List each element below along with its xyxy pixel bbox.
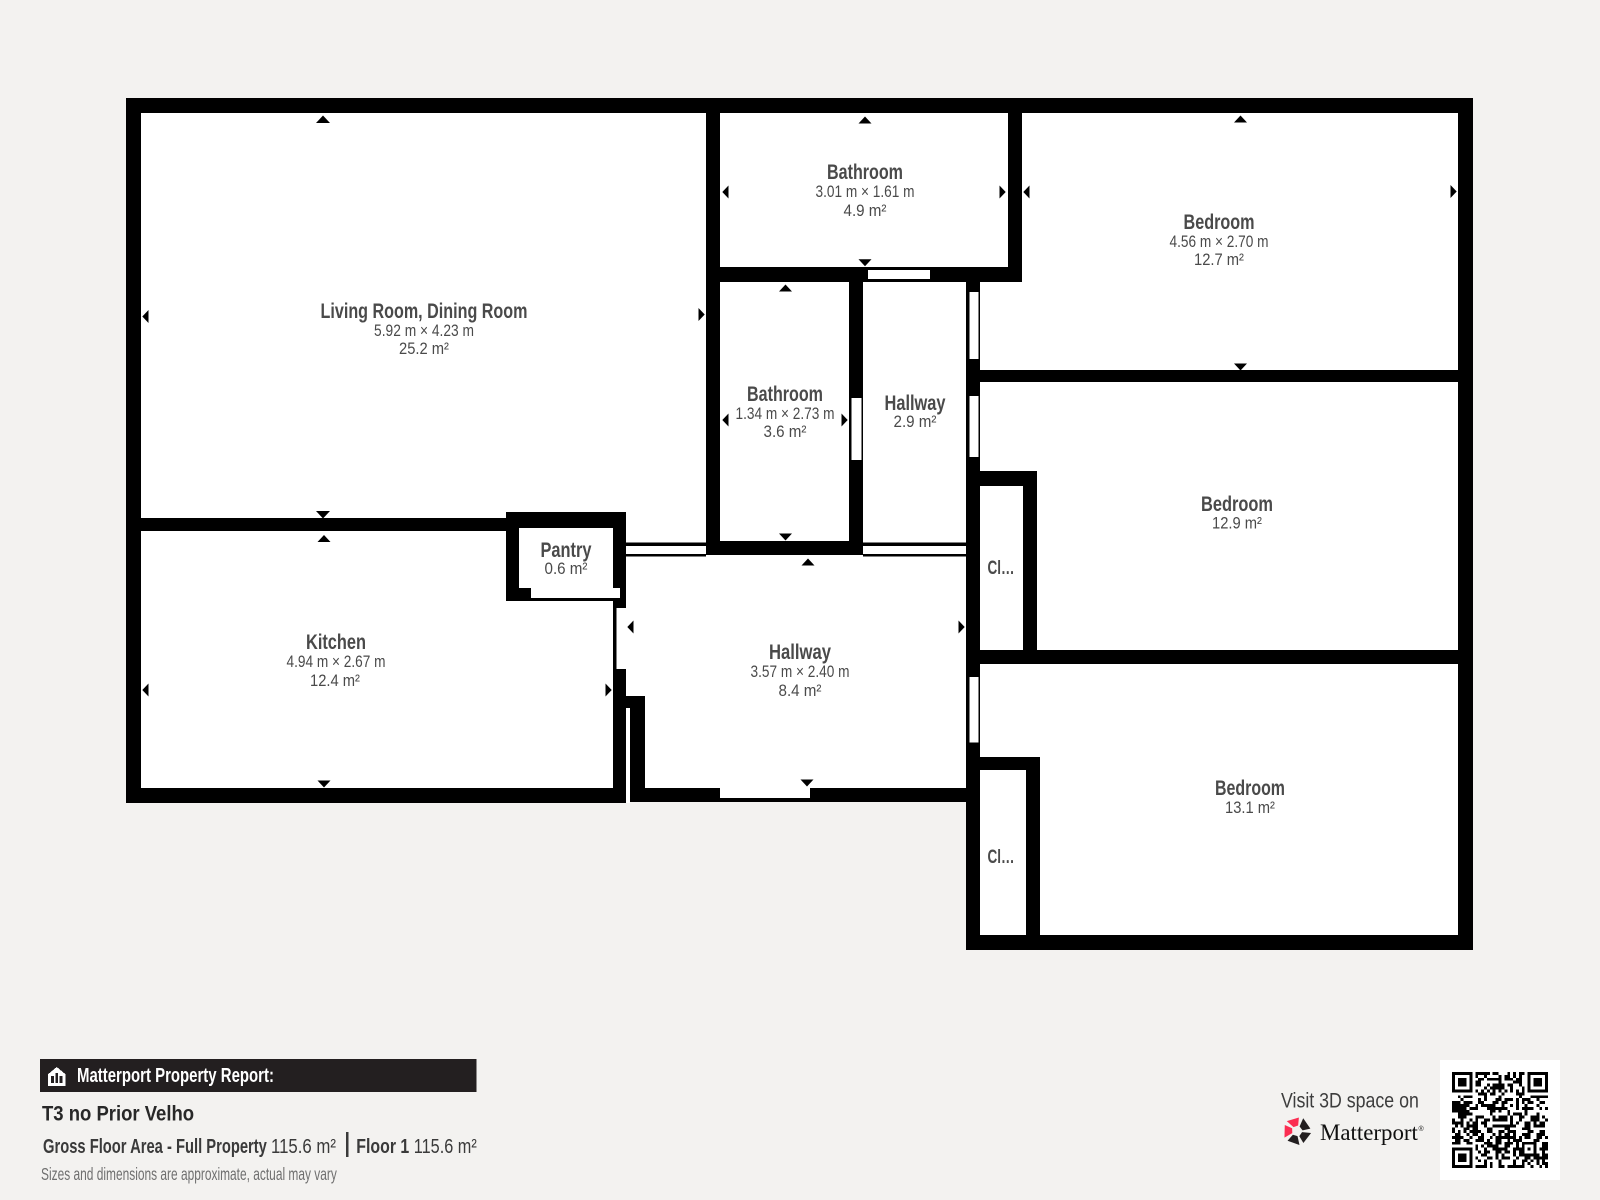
svg-text:Cl…: Cl… <box>988 558 1015 579</box>
svg-text:3.6 m²: 3.6 m² <box>764 423 807 441</box>
svg-text:Sizes and dimensions are appro: Sizes and dimensions are approximate, ac… <box>41 1165 337 1185</box>
svg-text:Hallway: Hallway <box>885 391 946 414</box>
svg-text:Gross Floor Area - Full Proper: Gross Floor Area - Full Property <box>43 1135 267 1158</box>
svg-text:4.94 m × 2.67 m: 4.94 m × 2.67 m <box>287 653 386 672</box>
svg-text:Bedroom: Bedroom <box>1184 210 1255 234</box>
svg-text:T3 no Prior Velho: T3 no Prior Velho <box>42 1102 194 1126</box>
svg-text:Bathroom: Bathroom <box>747 382 823 406</box>
svg-text:12.9 m²: 12.9 m² <box>1212 515 1262 533</box>
svg-text:12.7 m²: 12.7 m² <box>1194 251 1244 269</box>
svg-text:1.34 m × 2.73 m: 1.34 m × 2.73 m <box>736 405 835 424</box>
svg-text:3.57 m × 2.40 m: 3.57 m × 2.40 m <box>751 663 850 682</box>
svg-text:25.2 m²: 25.2 m² <box>399 340 449 358</box>
svg-text:Floor 1: Floor 1 <box>356 1135 409 1157</box>
svg-text:8.4 m²: 8.4 m² <box>779 682 822 700</box>
svg-text:Cl…: Cl… <box>988 847 1015 868</box>
svg-text:4.9 m²: 4.9 m² <box>844 202 887 220</box>
svg-text:Matterport Property Report:: Matterport Property Report: <box>77 1064 274 1087</box>
svg-text:Bedroom: Bedroom <box>1215 776 1285 800</box>
svg-text:Pantry: Pantry <box>541 538 592 561</box>
svg-text:5.92 m × 4.23 m: 5.92 m × 4.23 m <box>374 322 474 340</box>
svg-text:Kitchen: Kitchen <box>306 630 366 653</box>
svg-text:2.9 m²: 2.9 m² <box>894 413 937 431</box>
svg-text:Hallway: Hallway <box>769 641 831 664</box>
svg-text:115.6 m²: 115.6 m² <box>414 1135 477 1157</box>
svg-text:®: ® <box>1419 1125 1425 1133</box>
svg-text:4.56 m × 2.70 m: 4.56 m × 2.70 m <box>1170 233 1269 252</box>
svg-text:Living Room, Dining Room: Living Room, Dining Room <box>321 299 528 323</box>
svg-text:3.01 m × 1.61 m: 3.01 m × 1.61 m <box>816 183 915 202</box>
svg-text:12.4 m²: 12.4 m² <box>310 672 360 690</box>
svg-text:Bedroom: Bedroom <box>1201 492 1273 515</box>
svg-text:13.1 m²: 13.1 m² <box>1225 799 1275 817</box>
svg-text:0.6 m²: 0.6 m² <box>545 560 588 578</box>
svg-text:Bathroom: Bathroom <box>827 160 903 184</box>
svg-text:Matterport: Matterport <box>1320 1120 1418 1146</box>
svg-text:115.6 m²: 115.6 m² <box>271 1135 336 1158</box>
svg-text:Visit 3D space on: Visit 3D space on <box>1281 1089 1419 1113</box>
